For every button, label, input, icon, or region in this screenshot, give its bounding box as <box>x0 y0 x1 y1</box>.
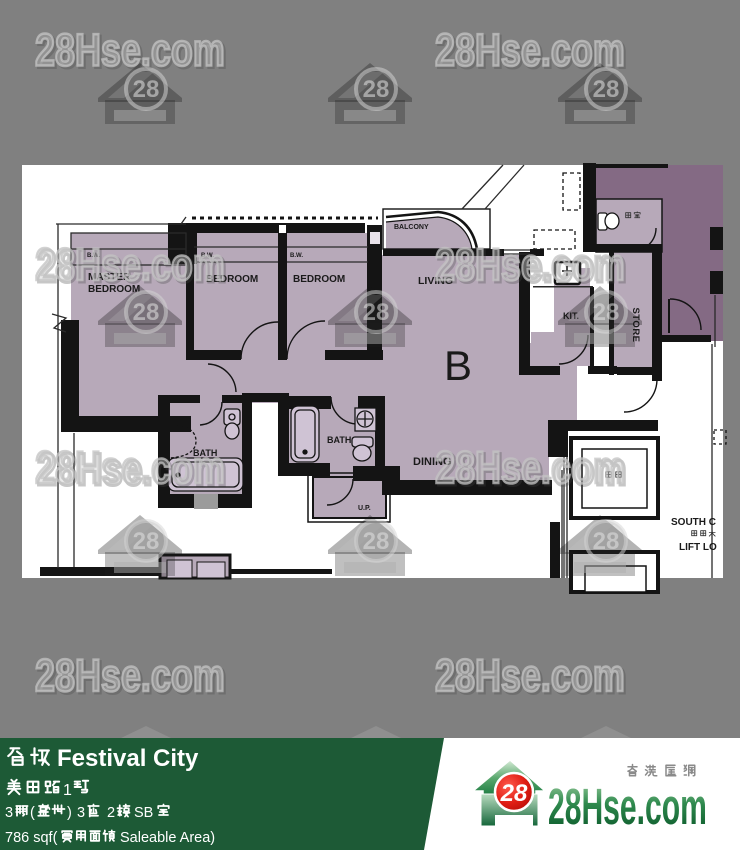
svg-text:(: ( <box>30 805 35 821</box>
svg-text:28: 28 <box>500 780 528 807</box>
svg-text:2: 2 <box>107 805 115 821</box>
svg-text:28Hse.com: 28Hse.com <box>35 24 225 75</box>
svg-text:28Hse.com: 28Hse.com <box>435 650 625 701</box>
svg-text:786 sqf(: 786 sqf( <box>5 830 58 846</box>
svg-text:B.W.: B.W. <box>290 253 303 259</box>
svg-text:1: 1 <box>63 782 72 799</box>
svg-text:28Hse.com: 28Hse.com <box>435 239 625 290</box>
svg-text:3: 3 <box>77 805 85 821</box>
svg-text:3: 3 <box>5 805 13 821</box>
svg-text:28Hse.com: 28Hse.com <box>435 442 625 493</box>
svg-text:BATH: BATH <box>327 435 351 445</box>
svg-text:BEDROOM: BEDROOM <box>293 274 345 285</box>
svg-text:U.P.: U.P. <box>358 505 371 512</box>
svg-text:Festival City: Festival City <box>57 745 199 772</box>
svg-text:SB: SB <box>134 805 153 821</box>
svg-text:Saleable Area): Saleable Area) <box>120 830 215 846</box>
svg-text:): ) <box>67 805 72 821</box>
svg-text:28Hse.com: 28Hse.com <box>35 650 225 701</box>
svg-text:28Hse.com: 28Hse.com <box>35 239 225 290</box>
svg-text:28Hse.com: 28Hse.com <box>548 778 707 835</box>
svg-text:28Hse.com: 28Hse.com <box>35 442 225 493</box>
svg-text:B: B <box>444 342 472 389</box>
svg-text:BALCONY: BALCONY <box>394 224 429 231</box>
svg-text:LIFT LO: LIFT LO <box>679 542 717 553</box>
svg-text:SOUTH C: SOUTH C <box>671 517 716 528</box>
